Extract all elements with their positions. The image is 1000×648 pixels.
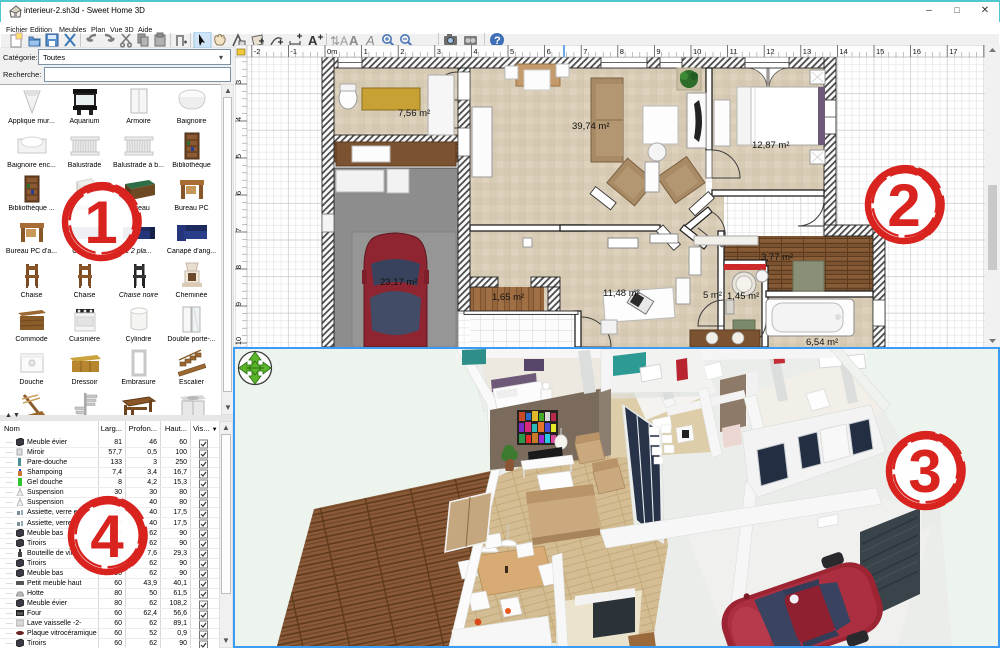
svg-text:4: 4 — [235, 117, 243, 121]
svg-text:1: 1 — [84, 189, 117, 256]
svg-text:8: 8 — [620, 47, 624, 56]
svg-text:12,87 m²: 12,87 m² — [752, 140, 790, 151]
svg-text:11: 11 — [730, 47, 738, 56]
svg-text:5: 5 — [510, 47, 514, 56]
svg-text:1,45 m²: 1,45 m² — [727, 291, 759, 302]
svg-text:3,77 m²: 3,77 m² — [761, 252, 793, 263]
svg-text:13: 13 — [803, 47, 811, 56]
svg-text:5: 5 — [235, 154, 243, 158]
svg-text:4: 4 — [90, 503, 124, 570]
svg-text:-1: -1 — [290, 47, 297, 56]
svg-text:10: 10 — [235, 337, 243, 345]
svg-text:3: 3 — [235, 80, 243, 84]
svg-text:7: 7 — [583, 47, 587, 56]
svg-text:9: 9 — [656, 47, 660, 56]
svg-text:6: 6 — [547, 47, 551, 56]
svg-text:39,74 m²: 39,74 m² — [572, 121, 610, 132]
svg-text:9: 9 — [235, 302, 243, 306]
svg-text:12: 12 — [766, 47, 774, 56]
svg-text:2: 2 — [887, 172, 920, 239]
svg-text:1: 1 — [364, 47, 368, 56]
svg-text:6: 6 — [235, 191, 243, 195]
svg-text:10: 10 — [693, 47, 701, 56]
svg-text:15: 15 — [876, 47, 884, 56]
svg-text:3: 3 — [437, 47, 441, 56]
svg-text:6,54 m²: 6,54 m² — [806, 337, 838, 347]
svg-text:8: 8 — [235, 265, 243, 269]
svg-text:3: 3 — [908, 438, 941, 505]
svg-text:7,56 m²: 7,56 m² — [398, 108, 430, 119]
svg-text:2: 2 — [400, 47, 404, 56]
svg-text:17: 17 — [949, 47, 957, 56]
svg-text:11,48 m²: 11,48 m² — [603, 288, 640, 299]
svg-text:-2: -2 — [254, 47, 261, 56]
svg-text:5 m²: 5 m² — [703, 290, 722, 301]
svg-text:14: 14 — [839, 47, 847, 56]
svg-text:4: 4 — [473, 47, 477, 56]
svg-text:1,65 m²: 1,65 m² — [492, 292, 524, 303]
svg-text:7: 7 — [235, 228, 243, 232]
svg-text:23,17 m²: 23,17 m² — [380, 277, 418, 288]
svg-text:16: 16 — [913, 47, 921, 56]
